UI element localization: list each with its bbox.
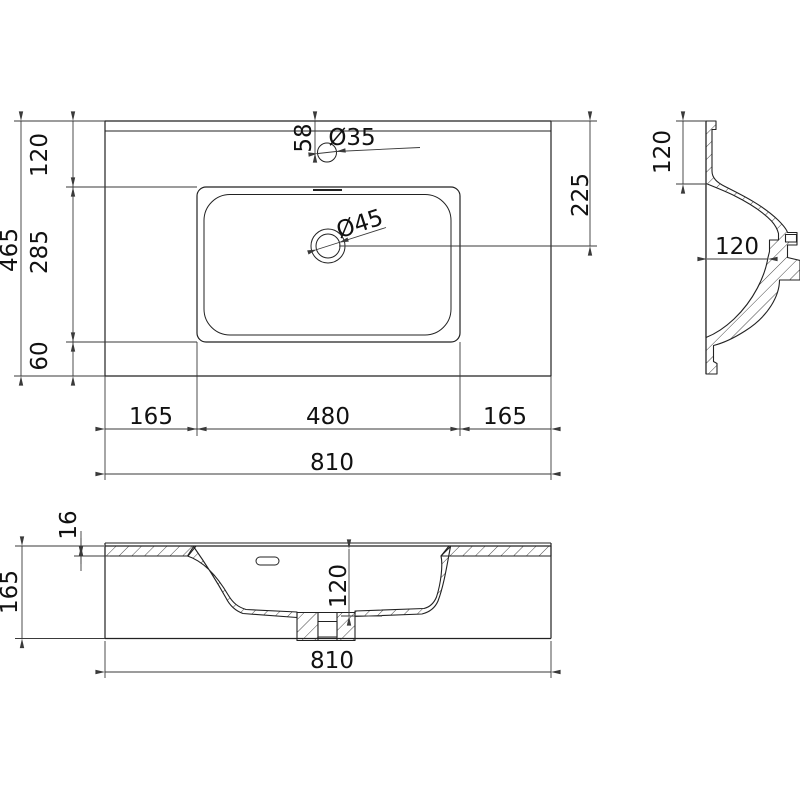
front-drain-opening <box>318 622 337 638</box>
side-rim-notch <box>786 235 797 243</box>
front-overflow-slot <box>256 557 279 565</box>
plan-bottom-dimensions: 165 480 165 810 <box>105 342 551 480</box>
front-slab-right <box>441 546 551 556</box>
dim-front-top-thickness: 16 <box>56 510 82 539</box>
front-bowl-wall-right <box>355 547 451 617</box>
dim-plan-zone-basin: 285 <box>27 230 53 274</box>
dim-plan-faucet-offset: 58 <box>291 123 317 152</box>
front-drain-boss-left <box>297 613 318 641</box>
plan-left-dimensions: 465 120 285 60 <box>0 121 197 376</box>
dim-plan-faucet-dia: Ø35 <box>328 125 375 151</box>
dim-front-bowl-depth: 120 <box>326 564 352 608</box>
plan-faucet-dimensions: 58 Ø35 <box>291 121 420 154</box>
technical-drawing-canvas: 465 120 285 60 58 Ø35 Ø45 225 <box>0 0 800 800</box>
front-drain-boss-right <box>337 613 355 641</box>
dim-plan-basin-width: 480 <box>306 404 350 430</box>
dim-front-width-total: 810 <box>310 648 354 674</box>
plan-view: 465 120 285 60 58 Ø35 Ø45 225 <box>0 121 597 480</box>
dim-plan-height-total: 465 <box>0 228 23 272</box>
front-dimensions: 16 165 120 810 <box>0 510 551 678</box>
dim-front-height-total: 165 <box>0 570 23 614</box>
dim-side-inner-width: 120 <box>715 234 759 260</box>
dim-plan-margin-right: 165 <box>483 404 527 430</box>
plan-basin-floor-edge <box>204 195 451 336</box>
drawing-sheet: 465 120 285 60 58 Ø35 Ø45 225 <box>0 0 800 800</box>
side-section-view: 120 120 <box>650 121 800 374</box>
dim-plan-drain-dia: Ø45 <box>333 205 386 244</box>
dim-side-rim-depth: 120 <box>650 130 676 174</box>
front-bowl-wall-left <box>188 547 298 618</box>
dim-plan-zone-front: 60 <box>27 341 53 370</box>
plan-basin-rim <box>197 187 460 342</box>
plan-countertop-outline <box>105 121 551 376</box>
dim-plan-margin-left: 165 <box>129 404 173 430</box>
dim-plan-zone-back: 120 <box>27 133 53 177</box>
front-slab-left <box>105 546 196 556</box>
front-section-view: 16 165 120 810 <box>0 510 551 678</box>
dim-plan-drain-offset: 225 <box>568 173 594 217</box>
dim-plan-width-total: 810 <box>310 450 354 476</box>
